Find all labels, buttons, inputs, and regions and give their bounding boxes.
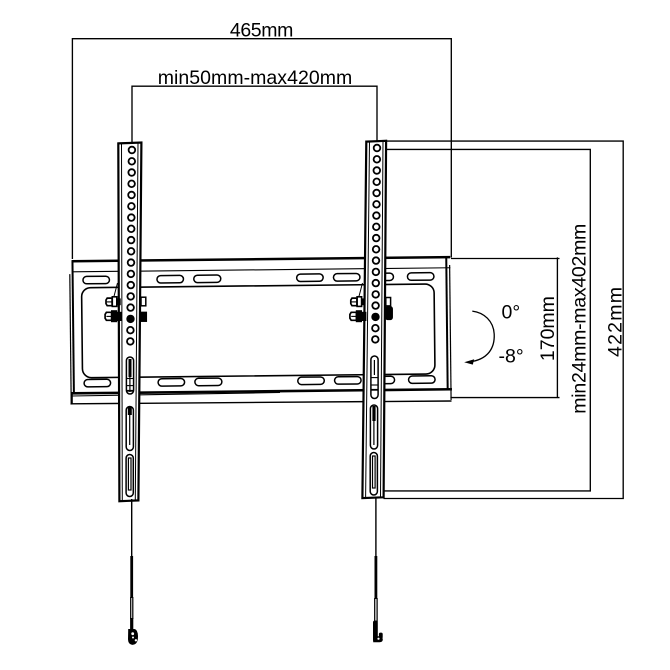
svg-text:min50mm-max420mm: min50mm-max420mm <box>158 67 353 89</box>
svg-text:min24mm-max402mm: min24mm-max402mm <box>569 224 591 414</box>
svg-text:170mm: 170mm <box>537 296 559 361</box>
svg-text:-8°: -8° <box>499 346 524 368</box>
svg-text:422mm: 422mm <box>605 287 627 357</box>
svg-text:465mm: 465mm <box>230 19 294 41</box>
svg-text:0°: 0° <box>502 301 521 323</box>
